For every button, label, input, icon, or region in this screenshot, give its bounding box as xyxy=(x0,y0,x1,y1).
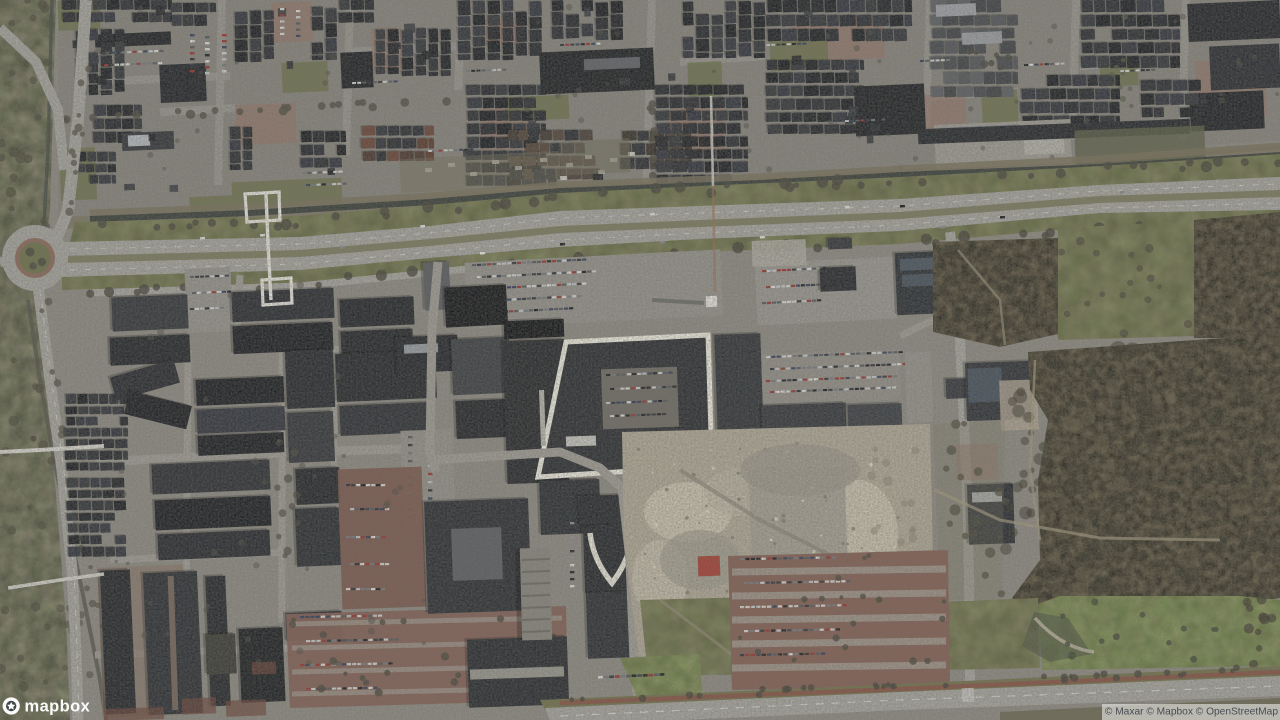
svg-text:mapbox: mapbox xyxy=(25,698,91,716)
svg-text:© Maxar © Mapbox © OpenStreetM: © Maxar © Mapbox © OpenStreetMap xyxy=(1105,707,1278,718)
